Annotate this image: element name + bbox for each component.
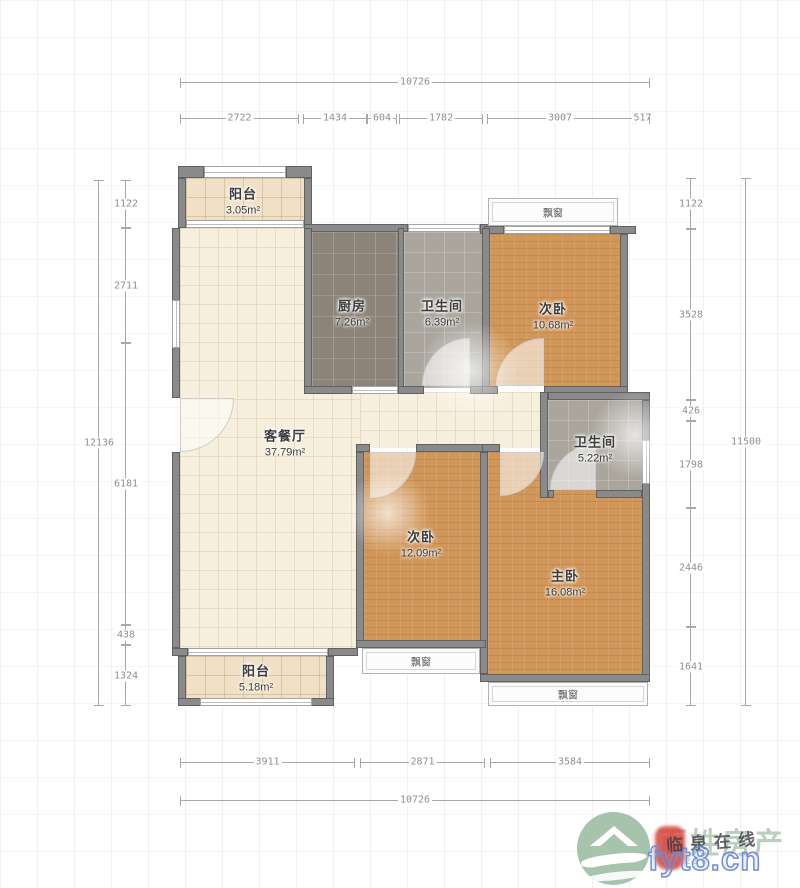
window: [200, 698, 312, 706]
room-area: 7.26m²: [335, 317, 369, 329]
wall: [482, 444, 500, 452]
dim-label: 3528: [677, 309, 705, 320]
dim-label: 1641: [677, 661, 705, 672]
dim-label: 426: [680, 405, 702, 416]
room-label-kitchen: 厨房 7.26m²: [335, 296, 369, 329]
bay-window-bottom-mid: 飘窗: [362, 648, 480, 674]
dim-top-segment: 517: [635, 118, 650, 119]
room-area: 10.68m²: [533, 320, 573, 332]
wall: [540, 392, 548, 498]
wall: [178, 166, 204, 178]
room-name: 卫生间: [421, 296, 463, 315]
dim-label: 1434: [321, 113, 349, 124]
dim-label: 2711: [112, 280, 140, 291]
dim-right-total: 11500: [745, 178, 746, 706]
dim-label: 2446: [677, 562, 705, 573]
wall: [172, 452, 180, 648]
dim-label: 604: [371, 113, 393, 124]
wall: [178, 178, 186, 228]
window: [172, 300, 180, 348]
wall: [356, 444, 370, 452]
room-name: 卫生间: [574, 432, 616, 451]
bay-window-label: 飘窗: [411, 654, 431, 669]
room-area: 6.39m²: [421, 317, 463, 329]
room-label-balcony-top: 阳台 3.05m²: [226, 184, 260, 217]
wall: [482, 386, 498, 394]
dim-right-segment: 3528: [690, 229, 691, 400]
bay-window-bottom-right: 飘窗: [488, 682, 648, 706]
dim-label: 10726: [398, 77, 432, 88]
room-name: 主卧: [545, 566, 585, 585]
dim-label: 1122: [677, 198, 705, 209]
dim-left-segment: 6181: [125, 343, 126, 625]
room-label-bath-mid: 卫生间 5.22m²: [574, 432, 616, 465]
kitchen-door: [352, 386, 398, 394]
dim-label: 3584: [556, 757, 584, 768]
room-area: 37.79m²: [264, 447, 306, 459]
wall: [356, 452, 364, 648]
dim-label: 1782: [427, 113, 455, 124]
watermark-url: fyt8.cn: [648, 840, 761, 878]
room-area: 3.05m²: [226, 205, 260, 217]
wall: [398, 228, 404, 394]
room-label-bedroom-mid: 次卧 12.09m²: [401, 527, 441, 560]
wall: [356, 640, 486, 648]
dim-top-total: 10726: [180, 82, 650, 83]
room-name: 客餐厅: [264, 426, 306, 445]
brand-logo-icon: [577, 812, 650, 885]
window: [204, 166, 286, 178]
dim-label: 1324: [112, 670, 140, 681]
dim-top-segment: 1434: [303, 118, 367, 119]
dim-left-segment: 438: [125, 625, 126, 645]
house-icon-inner: [598, 834, 630, 848]
wall: [328, 648, 358, 656]
wall: [416, 444, 486, 452]
wall: [596, 490, 642, 498]
dim-top-segment: 1782: [399, 118, 483, 119]
wall: [482, 228, 490, 394]
dim-top-segment: 2722: [180, 118, 299, 119]
dim-label: 517: [631, 113, 653, 124]
wall: [548, 392, 650, 400]
window: [188, 648, 328, 656]
wall: [610, 226, 636, 234]
dim-left-segment: 1324: [125, 645, 126, 706]
dim-right-segment: 2446: [690, 508, 691, 627]
dim-label: 438: [115, 630, 137, 641]
wall: [304, 228, 312, 394]
dim-bottom-segment: 3584: [490, 762, 650, 763]
room-area: 5.18m²: [239, 682, 273, 694]
room-name: 次卧: [533, 299, 573, 318]
room-label-master: 主卧 16.08m²: [545, 566, 585, 599]
room-area: 5.22m²: [574, 453, 616, 465]
dim-label: 11500: [729, 437, 763, 448]
wall: [480, 674, 650, 682]
dim-label: 10726: [398, 795, 432, 806]
bay-window-label: 飘窗: [543, 205, 563, 220]
dim-label: 1122: [112, 199, 140, 210]
room-living-corridor: [360, 392, 542, 448]
dim-bottom-segment: 2871: [360, 762, 485, 763]
window: [408, 224, 480, 232]
dim-label: 2871: [408, 757, 436, 768]
room-area: 12.09m²: [401, 548, 441, 560]
room-area: 16.08m²: [545, 587, 585, 599]
dim-right-segment: 426: [690, 400, 691, 421]
dim-label: 3911: [253, 757, 281, 768]
dim-bottom-segment: 3911: [180, 762, 355, 763]
room-name: 阳台: [239, 661, 273, 680]
room-label-living: 客餐厅 37.79m²: [264, 426, 306, 459]
dim-left-total: 12136: [98, 180, 99, 706]
window: [642, 440, 650, 484]
wall: [172, 648, 188, 656]
wall: [304, 178, 312, 228]
wall: [304, 386, 352, 394]
bay-window-top: 飘窗: [488, 198, 618, 226]
dim-bottom-total: 10726: [180, 800, 650, 801]
room-name: 厨房: [335, 296, 369, 315]
dim-top-segment: 604: [367, 118, 397, 119]
room-label-bath-top: 卫生间 6.39m²: [421, 296, 463, 329]
dim-right-segment: 1641: [690, 627, 691, 706]
wall: [286, 166, 312, 178]
dim-label: 1798: [677, 459, 705, 470]
window: [504, 226, 610, 234]
dim-left-segment: 2711: [125, 228, 126, 343]
dim-right-segment: 1798: [690, 421, 691, 508]
window: [186, 220, 304, 228]
wall: [398, 386, 424, 394]
dim-right-segment: 1122: [690, 178, 691, 229]
wall: [304, 224, 408, 232]
room-label-balcony-bottom: 阳台 5.18m²: [239, 661, 273, 694]
room-name: 阳台: [226, 184, 260, 203]
bay-window-label: 飘窗: [558, 687, 578, 702]
room-name: 次卧: [401, 527, 441, 546]
wall: [620, 234, 628, 392]
wall: [548, 490, 554, 498]
dim-label: 12136: [82, 438, 116, 449]
dim-label: 3007: [546, 113, 574, 124]
room-label-bedroom-top: 次卧 10.68m²: [533, 299, 573, 332]
dim-label: 2722: [225, 113, 253, 124]
dim-left-segment: 1122: [125, 180, 126, 228]
floorplan-image: 10726 2722 1434 604 1782 3007 517 3911 2…: [0, 0, 800, 888]
dim-label: 6181: [112, 479, 140, 490]
dim-top-segment: 3007: [487, 118, 633, 119]
